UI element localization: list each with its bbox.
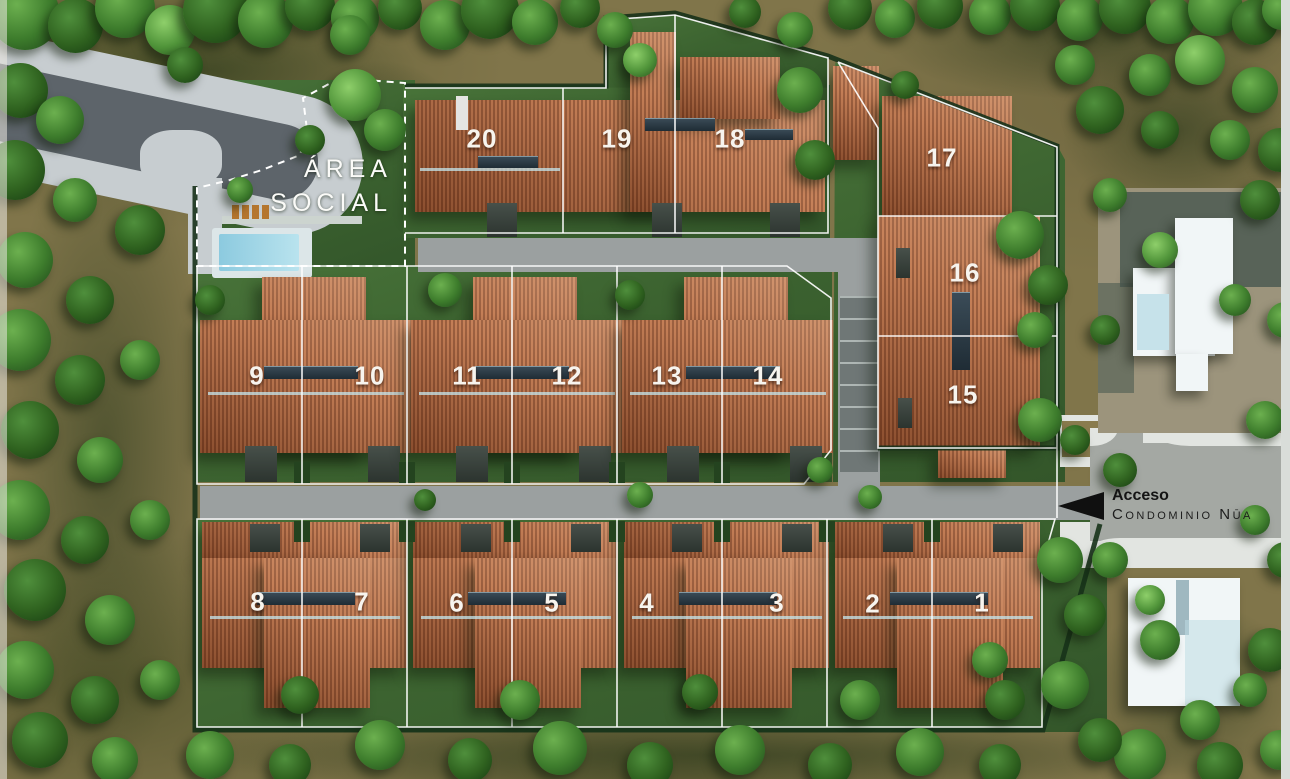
- site-plan-canvas: ÁREA SOCIAL Acceso Condominio Nūa 123456…: [0, 0, 1290, 779]
- lot-label-13: 13: [652, 361, 683, 392]
- lot-label-15: 15: [948, 380, 979, 411]
- lot-label-11: 11: [452, 361, 482, 392]
- lot-label-14: 14: [753, 361, 784, 392]
- lot-label-12: 12: [552, 361, 583, 392]
- lot-label-1: 1: [974, 588, 989, 619]
- lot-label-8: 8: [250, 587, 265, 618]
- lot-label-10: 10: [355, 361, 386, 392]
- access-arrow-icon: [1058, 492, 1104, 520]
- lot-label-6: 6: [449, 588, 464, 619]
- lot-label-17: 17: [927, 143, 958, 174]
- lot-label-18: 18: [715, 124, 746, 155]
- lot-label-4: 4: [639, 588, 654, 619]
- label-layer: ÁREA SOCIAL Acceso Condominio Nūa 123456…: [0, 0, 1290, 779]
- lot-label-9: 9: [249, 361, 264, 392]
- lot-label-2: 2: [865, 589, 880, 620]
- area-social-line2: SOCIAL: [240, 186, 392, 220]
- access-label-group: Acceso Condominio Nūa: [1058, 487, 1288, 533]
- image-edge-left: [0, 0, 7, 779]
- lot-label-20: 20: [467, 124, 498, 155]
- lot-label-16: 16: [950, 258, 981, 289]
- area-social-label: ÁREA SOCIAL: [240, 152, 392, 220]
- lot-label-19: 19: [602, 124, 633, 155]
- access-label: Acceso: [1112, 487, 1169, 505]
- image-edge-right: [1281, 0, 1290, 779]
- area-social-line1: ÁREA: [240, 152, 392, 186]
- lot-label-3: 3: [769, 588, 784, 619]
- lot-label-7: 7: [354, 587, 369, 618]
- access-sublabel: Condominio Nūa: [1112, 506, 1253, 523]
- lot-label-5: 5: [544, 588, 559, 619]
